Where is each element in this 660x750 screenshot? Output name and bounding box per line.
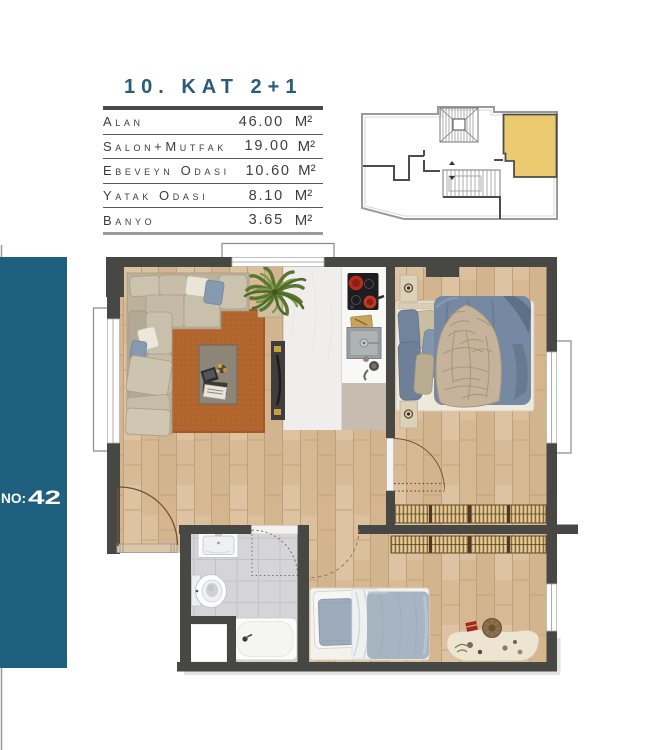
svg-text:NO:: NO: [1, 491, 26, 506]
svg-text:42: 42 [28, 488, 61, 509]
